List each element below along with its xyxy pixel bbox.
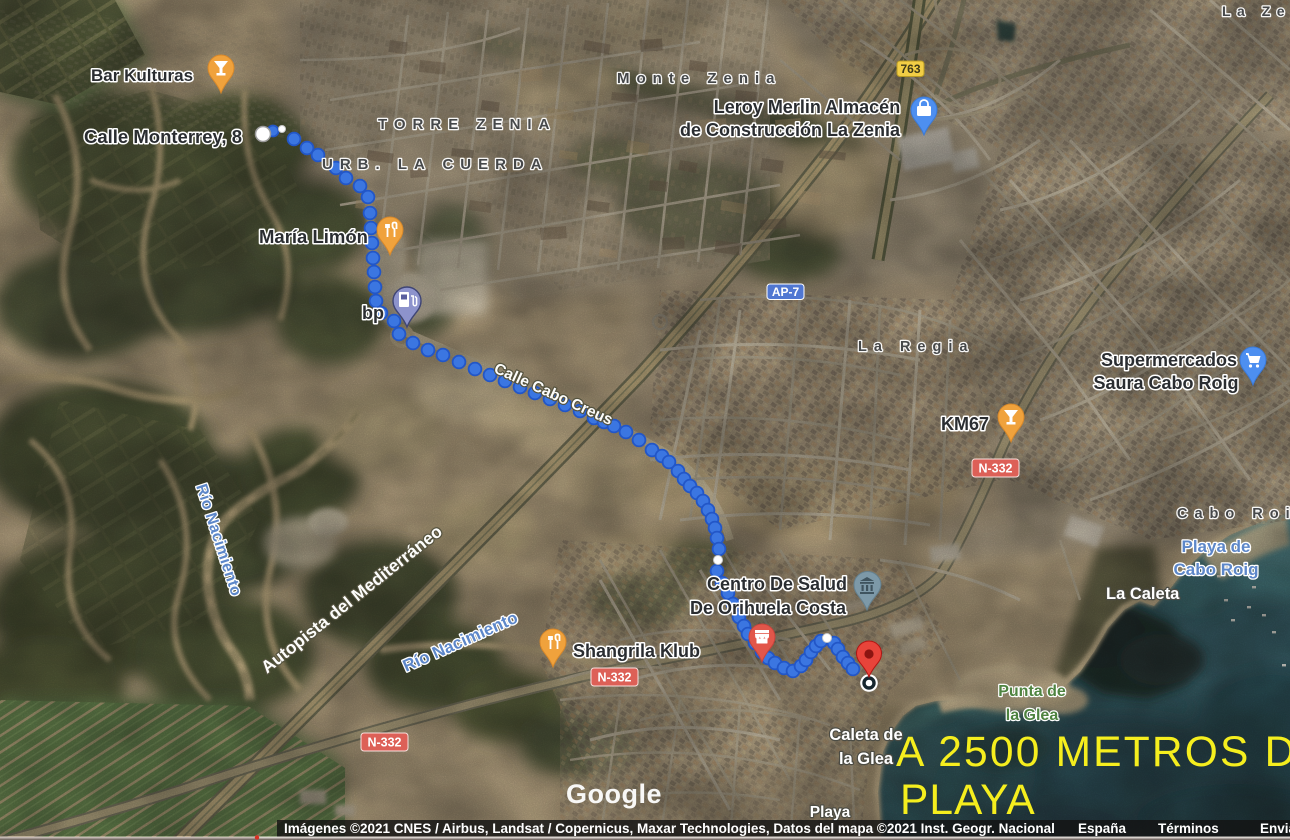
svg-text:Centro De Salud: Centro De Salud <box>707 574 847 594</box>
svg-text:La Zen: La Zen <box>1222 3 1290 19</box>
svg-text:De Orihuela Costa: De Orihuela Costa <box>690 598 847 618</box>
svg-text:Playa: Playa <box>810 804 851 821</box>
svg-text:bp: bp <box>362 303 384 323</box>
svg-text:Caleta de: Caleta de <box>829 726 902 744</box>
svg-text:la Glea: la Glea <box>1006 707 1059 724</box>
svg-text:La Caleta: La Caleta <box>1106 585 1180 603</box>
svg-text:PLAYA: PLAYA <box>900 777 1036 824</box>
svg-text:Playa de: Playa de <box>1182 537 1251 556</box>
svg-text:N-332: N-332 <box>978 462 1012 476</box>
svg-text:La Regia: La Regia <box>858 339 974 355</box>
svg-text:de Construcción La Zenia: de Construcción La Zenia <box>680 120 901 140</box>
svg-text:Shangrila Klub: Shangrila Klub <box>573 641 700 661</box>
svg-text:la Glea: la Glea <box>839 750 894 768</box>
svg-text:URB. LA CUERDA: URB. LA CUERDA <box>322 156 549 173</box>
svg-text:Saura Cabo Roig: Saura Cabo Roig <box>1093 373 1238 393</box>
svg-text:A 2500 METROS D: A 2500 METROS D <box>896 729 1290 776</box>
svg-text:763: 763 <box>900 62 920 76</box>
svg-text:Cabo Roig: Cabo Roig <box>1177 506 1290 522</box>
svg-text:Términos: Términos <box>1158 821 1219 836</box>
svg-text:Bar Kulturas: Bar Kulturas <box>91 66 193 85</box>
svg-text:Google: Google <box>566 779 662 809</box>
svg-text:Cabo Roig: Cabo Roig <box>1174 560 1259 579</box>
svg-text:Enviar c: Enviar c <box>1260 821 1290 836</box>
svg-text:Imágenes ©2021 CNES / Airbus,: Imágenes ©2021 CNES / Airbus, Landsat / … <box>284 821 1055 836</box>
svg-text:AP-7: AP-7 <box>772 285 800 299</box>
svg-text:N-332: N-332 <box>597 671 631 685</box>
svg-text:TORRE ZENIA: TORRE ZENIA <box>378 116 556 133</box>
svg-text:Monte Zenia: Monte Zenia <box>617 70 782 87</box>
svg-text:Leroy Merlin Almacén: Leroy Merlin Almacén <box>714 97 900 117</box>
svg-text:N-332: N-332 <box>367 736 401 750</box>
svg-text:España: España <box>1078 821 1127 836</box>
svg-text:KM67: KM67 <box>941 414 989 434</box>
svg-text:María Limón: María Limón <box>259 226 368 247</box>
svg-text:Supermercados: Supermercados <box>1101 350 1237 370</box>
svg-text:Calle Monterrey, 8: Calle Monterrey, 8 <box>84 126 242 147</box>
svg-text:Punta de: Punta de <box>998 683 1066 700</box>
